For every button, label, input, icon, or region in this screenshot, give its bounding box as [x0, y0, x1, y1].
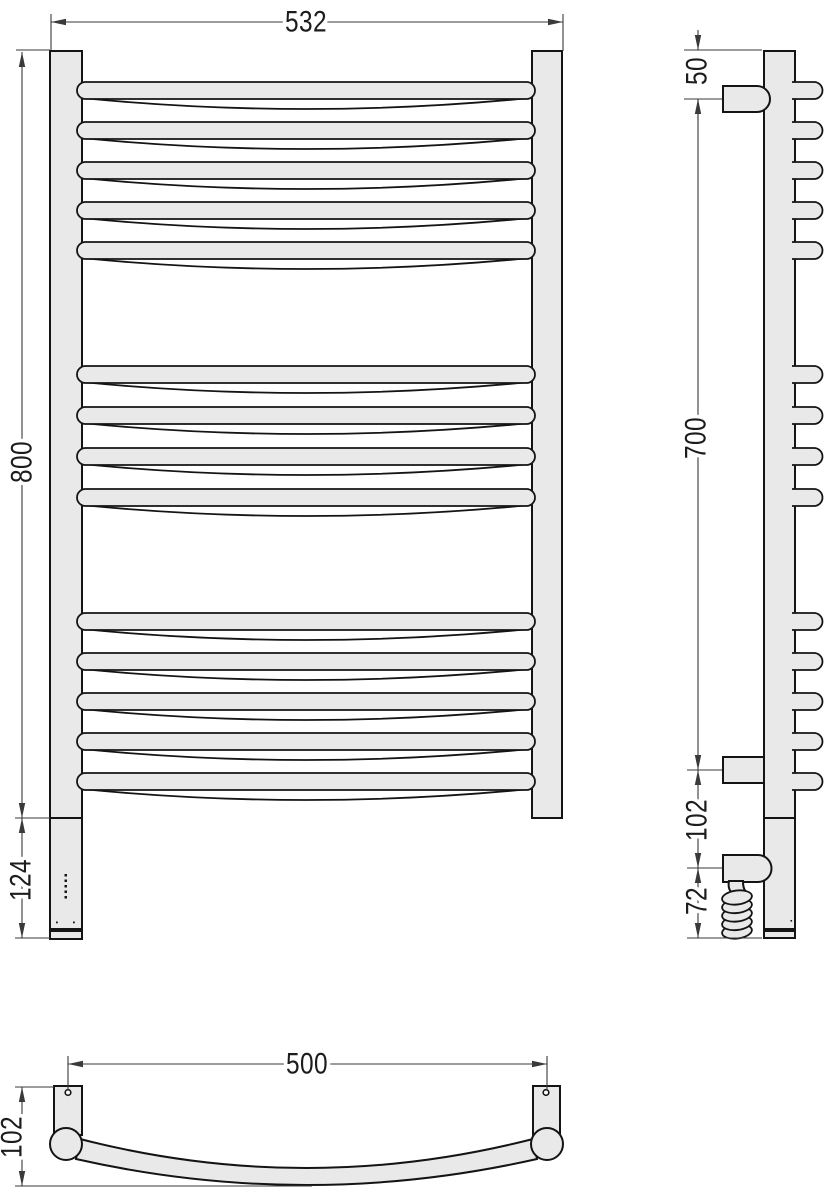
side-control-box-cap — [764, 931, 795, 938]
dim-front-control-box: 124 — [5, 818, 51, 938]
plan-right-mount-hole — [543, 1090, 549, 1096]
side-bar-stubs — [792, 82, 823, 790]
dim-label-side-top-offset: 50 — [681, 57, 714, 85]
plan-curved-bar — [76, 1139, 537, 1185]
dim-front-height: 800 — [6, 50, 51, 818]
side-lower-wall-bracket — [723, 757, 764, 783]
side-post — [764, 51, 795, 818]
dim-front-width: 532 — [51, 6, 563, 52]
plan-left-post-section — [50, 1128, 82, 1160]
dim-label-plan-mount-width: 500 — [286, 1048, 328, 1081]
dim-label-front-control-box: 124 — [5, 859, 38, 901]
dim-side-lower-offset: 102 — [681, 770, 723, 868]
towel-rail-technical-drawing: 532 800 124 — [0, 0, 836, 1200]
dim-label-side-cable-offset: 72 — [681, 887, 714, 915]
plan-left-mount-hole — [65, 1090, 71, 1096]
plan-right-post-section — [531, 1128, 563, 1160]
front-control-box-cap — [50, 931, 82, 939]
front-right-post — [532, 51, 562, 818]
side-cable-housing — [723, 855, 772, 882]
dim-label-side-bracket-span: 700 — [680, 417, 713, 459]
plan-view: 500 102 — [0, 1048, 563, 1187]
front-control-box — [50, 818, 82, 929]
side-view: 50 700 102 72 — [680, 30, 823, 940]
dim-label-side-lower-offset: 102 — [681, 799, 714, 841]
dim-label-plan-depth: 102 — [0, 1116, 29, 1158]
technical-drawing-page: 532 800 124 — [0, 0, 836, 1200]
front-rung-bars — [77, 82, 535, 800]
dim-plan-mount-width: 500 — [68, 1048, 547, 1091]
side-top-wall-bracket — [723, 86, 770, 112]
power-cable-coil — [721, 881, 752, 940]
dim-label-front-width: 532 — [285, 6, 327, 39]
dim-side-bracket-span: 700 — [680, 99, 723, 770]
front-view: 532 800 124 — [5, 6, 564, 940]
dim-label-front-height: 800 — [6, 441, 39, 483]
